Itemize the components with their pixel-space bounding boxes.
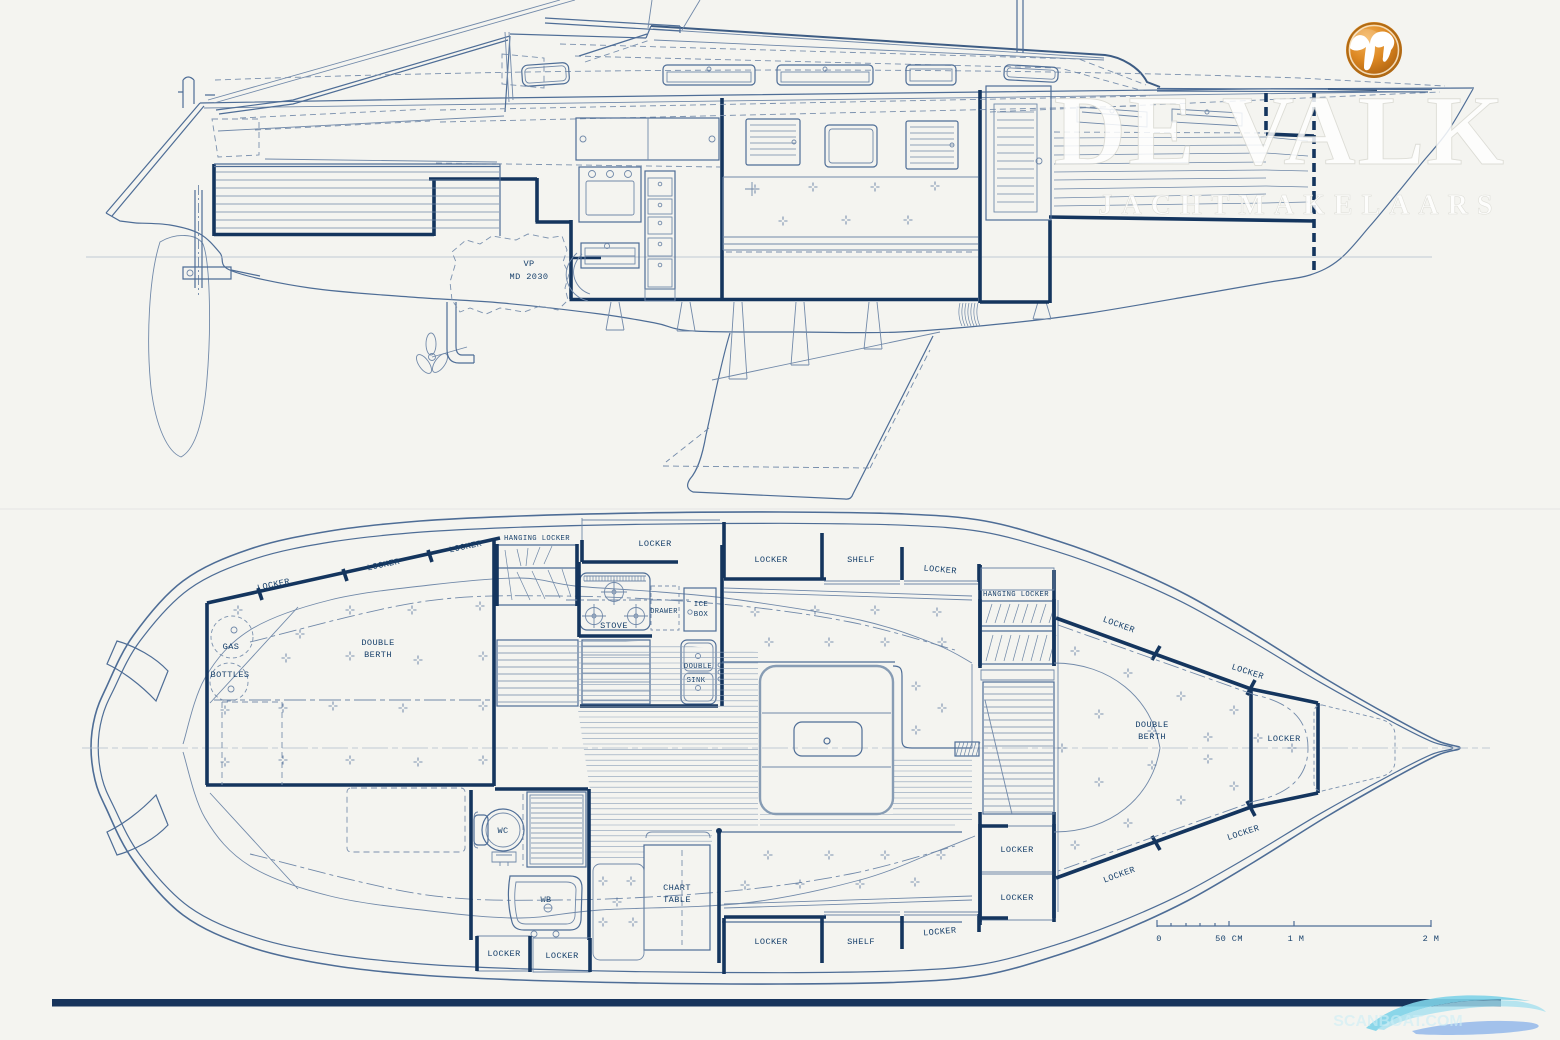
svg-text:LOCKER: LOCKER xyxy=(754,555,787,565)
svg-text:BOTTLES: BOTTLES xyxy=(211,670,250,680)
svg-text:DOUBLE: DOUBLE xyxy=(1135,720,1168,730)
svg-text:SHELF: SHELF xyxy=(847,937,875,947)
svg-text:BOX: BOX xyxy=(694,611,709,619)
svg-text:WB: WB xyxy=(540,895,551,905)
svg-text:CHART: CHART xyxy=(663,883,691,893)
svg-text:DOUBLE: DOUBLE xyxy=(684,663,712,671)
svg-text:LOCKER: LOCKER xyxy=(638,539,671,549)
svg-text:GAS: GAS xyxy=(223,642,240,652)
svg-text:SHELF: SHELF xyxy=(847,555,875,565)
svg-text:MD 2030: MD 2030 xyxy=(510,272,549,282)
svg-text:LOCKER: LOCKER xyxy=(1000,893,1033,903)
svg-text:DOUBLE: DOUBLE xyxy=(361,638,394,648)
svg-text:DE VALK: DE VALK xyxy=(1054,75,1506,186)
svg-text:2 M: 2 M xyxy=(1423,934,1440,944)
svg-text:STOVE: STOVE xyxy=(600,621,628,631)
svg-text:HANGING LOCKER: HANGING LOCKER xyxy=(983,591,1049,599)
svg-text:LOCKER: LOCKER xyxy=(1000,845,1033,855)
svg-text:TABLE: TABLE xyxy=(663,895,691,905)
svg-text:VP: VP xyxy=(523,259,534,269)
svg-text:HANGING LOCKER: HANGING LOCKER xyxy=(504,535,570,543)
svg-text:LOCKER: LOCKER xyxy=(545,951,578,961)
svg-text:SCANBOAT.COM: SCANBOAT.COM xyxy=(1333,1013,1462,1030)
svg-text:BERTH: BERTH xyxy=(1138,732,1166,742)
svg-text:WC: WC xyxy=(497,826,508,836)
svg-text:JACHTMAKELAARS: JACHTMAKELAARS xyxy=(1099,190,1502,221)
svg-text:LOCKER: LOCKER xyxy=(487,949,520,959)
svg-text:0: 0 xyxy=(1156,934,1162,944)
svg-text:BERTH: BERTH xyxy=(364,650,392,660)
svg-text:LOCKER: LOCKER xyxy=(754,937,787,947)
svg-text:DRAWER: DRAWER xyxy=(650,608,678,616)
svg-text:1 M: 1 M xyxy=(1288,934,1305,944)
svg-text:ICE: ICE xyxy=(694,601,709,609)
svg-text:50 CM: 50 CM xyxy=(1215,934,1243,944)
svg-text:SINK: SINK xyxy=(687,677,706,685)
svg-text:LOCKER: LOCKER xyxy=(1267,734,1300,744)
